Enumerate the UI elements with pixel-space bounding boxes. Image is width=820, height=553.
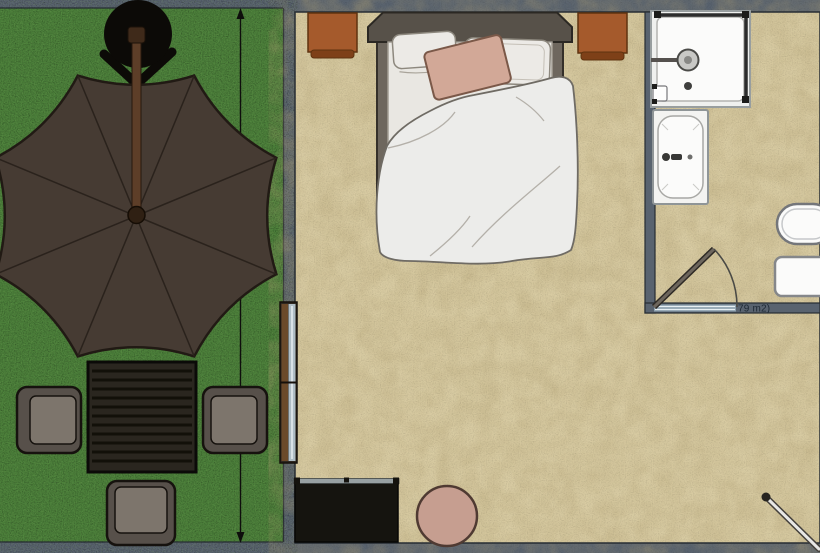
- patio-window: [280, 302, 297, 463]
- toilet: [777, 204, 820, 244]
- patio-chair-left: [17, 387, 81, 453]
- floor-plan-canvas: 79 m2): [0, 0, 820, 553]
- door-threshold: [654, 305, 736, 312]
- nightstand-left: [308, 13, 357, 58]
- parasol-pole: [132, 40, 141, 216]
- double-bed: [368, 13, 578, 264]
- shower-drain-icon: [684, 82, 692, 90]
- tv-cabinet: [294, 478, 399, 543]
- nightstand-right: [578, 13, 627, 60]
- patio-chair-bottom: [107, 481, 175, 545]
- parasol-cap: [128, 27, 145, 43]
- bathtub: [653, 110, 708, 204]
- patio-table: [88, 362, 196, 472]
- parasol-knob: [128, 207, 145, 224]
- bidet: [775, 257, 820, 296]
- pouf: [417, 486, 477, 546]
- shower: [651, 11, 750, 107]
- floor-plan: 79 m2): [0, 0, 820, 553]
- patio-chair-right: [203, 387, 267, 453]
- area-label: 79 m2): [738, 304, 770, 315]
